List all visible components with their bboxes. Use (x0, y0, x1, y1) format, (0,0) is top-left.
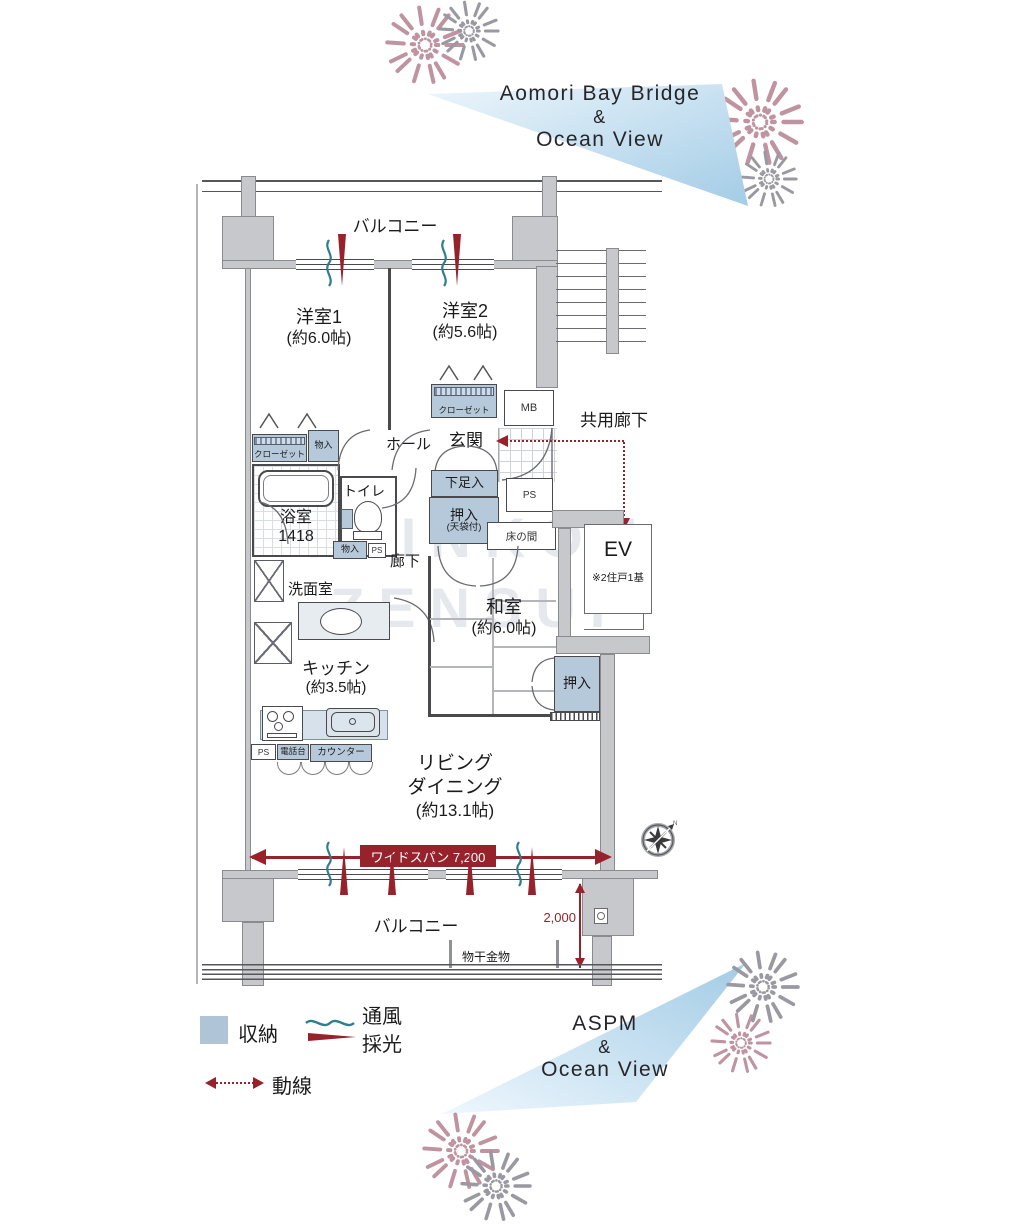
monoire-corridor-label: 物入 (341, 545, 359, 555)
hall-door-arc (380, 466, 418, 510)
washitsu-size: (約6.0帖) (452, 619, 556, 639)
elevator-label: EV (584, 538, 652, 562)
wall-common-b (558, 528, 571, 640)
compass-icon: N (638, 818, 680, 860)
bath-door-arc (258, 500, 290, 546)
closet-western2-rail (434, 387, 494, 396)
living-name2: ダイニング (384, 776, 526, 800)
view-top-amp: & (460, 107, 740, 128)
living-name1: リビング (384, 752, 526, 776)
view-label-top: Aomori Bay Bridge & Ocean View (460, 82, 740, 153)
wall-left (245, 268, 251, 876)
oshiire-hall-label: 押入 (450, 508, 478, 523)
view-bottom-amp: & (470, 1037, 740, 1058)
view-bottom-line1: ASPM (470, 1012, 740, 1037)
shoe-cabinet: 下足入 (431, 470, 498, 497)
counter-scallop (277, 762, 301, 775)
mb-label: MB (521, 402, 538, 414)
widespan-arrowhead-right (595, 849, 615, 865)
kitchen-label: キッチン (約3.5帖) (280, 658, 392, 698)
legend-vent-label: 通風 (362, 1000, 402, 1029)
oshiire-door-arc (530, 684, 556, 712)
legend-storage-swatch (200, 1016, 228, 1044)
view-label-bottom: ASPM & Ocean View (470, 1012, 740, 1083)
firework-icon (438, 0, 500, 67)
daylight-arrow-icon (338, 234, 346, 289)
washitsu-label: 和室 (約6.0帖) (452, 596, 556, 639)
monoire-western1-label: 物入 (314, 441, 332, 451)
phone-stand: 電話台 (277, 744, 309, 760)
column-bottom-right (582, 878, 634, 936)
toilet-door-arc (336, 428, 372, 472)
hanger-icon (258, 412, 280, 429)
washitsu-door-arc (478, 544, 520, 588)
pipe-space-corridor: PS (368, 543, 386, 558)
wall-right-lower (600, 654, 615, 876)
monoire-western1: 物入 (308, 430, 339, 462)
oshiire-door-arc (530, 656, 556, 684)
western2-size: (約5.6帖) (395, 323, 535, 343)
stove (262, 706, 303, 741)
ps-corridor-label: PS (372, 546, 383, 555)
dimension-2000-label: 2,000 (532, 910, 576, 925)
counter-label: カウンター (317, 748, 365, 758)
toilet-label: トイレ (343, 481, 385, 501)
wall-common-c (556, 636, 650, 654)
corridor-label: 廊下 (390, 550, 420, 571)
vent-wave-icon (322, 238, 336, 288)
widespan-label: ワイドスパン 7,200 (360, 845, 496, 867)
stairs-rail (606, 248, 619, 354)
column-bottom-left (222, 878, 274, 922)
washitsu-name: 和室 (452, 596, 556, 619)
washer-space (254, 560, 284, 602)
hanger-icon (472, 364, 494, 381)
kitchen-size: (約3.5帖) (280, 679, 392, 698)
dimension-2000-line (579, 884, 581, 968)
daylight-arrow-icon (528, 844, 536, 895)
washitsu-west-wall (428, 556, 431, 716)
flow-line-horizontal (506, 440, 624, 442)
ps-kitchen-label: PS (258, 747, 269, 757)
legend-flow-arrowhead-right (253, 1077, 267, 1089)
view-top-line1: Aomori Bay Bridge (460, 82, 740, 107)
vent-wave-icon (437, 238, 451, 288)
western1-name: 洋室1 (250, 306, 388, 329)
monoire-corridor: 物入 (333, 541, 367, 559)
wall-right-upper (536, 266, 558, 388)
daylight-arrow-icon (388, 844, 396, 895)
widespan-arrowhead-left (246, 849, 266, 865)
elevator-note: ※2住戸1基 (576, 570, 660, 585)
legend-daylight-arrow-icon (308, 1033, 359, 1041)
legend-light-label: 採光 (362, 1028, 402, 1057)
legend-vent-wave-icon (304, 1014, 358, 1032)
counter: カウンター (310, 744, 372, 762)
balcony-hinge-detail (594, 908, 608, 924)
washroom-label: 洗面室 (288, 578, 333, 599)
pipe-space-kitchen: PS (251, 744, 276, 760)
toilet-tank (353, 531, 382, 540)
vanity-sink (320, 608, 362, 635)
oshiire-rail (550, 712, 600, 721)
oshiire-washitsu: 押入 (554, 656, 600, 712)
meter-box: MB (504, 390, 554, 426)
counter-scallop (349, 762, 373, 775)
tatami-line (493, 646, 556, 648)
tatami-line (430, 666, 492, 668)
window-living-right (446, 869, 562, 880)
shoe-cabinet-label: 下足入 (445, 476, 484, 490)
legend-flow-label: 動線 (272, 1070, 312, 1099)
toilet-bowl (354, 501, 382, 533)
counter-scallop (301, 762, 325, 775)
daylight-arrow-icon (466, 844, 474, 895)
ps-entrance-label: PS (523, 490, 536, 501)
hanger-icon (296, 412, 318, 429)
flow-line-vertical (623, 442, 625, 520)
closet-western1-label: クローゼット (254, 450, 305, 459)
living-size: (約13.1帖) (384, 800, 526, 821)
room-western2-label: 洋室2 (約5.6帖) (395, 300, 535, 343)
view-bottom-line3: Ocean View (470, 1058, 740, 1083)
balcony-top-label: バルコニー (330, 212, 460, 237)
balcony-top-railing (202, 180, 662, 192)
living-label: リビング ダイニング (約13.1帖) (384, 752, 526, 821)
daylight-arrow-icon (453, 234, 461, 289)
left-boundary-line (196, 184, 198, 984)
firework-icon (710, 1012, 772, 1079)
western2-name: 洋室2 (395, 300, 535, 323)
view-top-line3: Ocean View (460, 128, 740, 153)
tokonoma-label: 床の間 (506, 529, 538, 544)
phone-stand-label: 電話台 (280, 747, 306, 756)
legend-flow-arrowhead-left (202, 1077, 216, 1089)
vent-wave-icon (322, 840, 336, 888)
kitchen-name: キッチン (280, 658, 392, 679)
oshiire-washitsu-label: 押入 (563, 676, 591, 691)
closet-western1-rail (254, 437, 305, 445)
window-living-left (298, 869, 428, 880)
vent-wave-icon (512, 840, 526, 888)
western1-size: (約6.0帖) (250, 329, 388, 349)
counter-scallop (325, 762, 349, 775)
column-top-left-stem (241, 176, 256, 220)
balcony-bottom-label: バルコニー (366, 912, 466, 937)
hanger-icon (438, 364, 460, 381)
room-western1-label: 洋室1 (約6.0帖) (250, 306, 388, 349)
daylight-arrow-icon (340, 844, 348, 895)
svg-text:N: N (673, 821, 677, 827)
closet-western2-label: クローゼット (438, 406, 489, 415)
elevator-step (584, 614, 644, 630)
washitsu-door-arc (436, 544, 478, 588)
column-top-right-stem (542, 176, 557, 220)
floorplan-page: Aomori Bay Bridge & Ocean View SHINKOU Z… (0, 0, 1035, 1224)
legend-flow-line (212, 1082, 254, 1084)
washitsu-south-wall (428, 714, 558, 717)
firework-icon (460, 1150, 532, 1224)
wall-western-divider (388, 268, 391, 430)
oshiire-hall-sublabel: (天袋付) (447, 523, 482, 533)
kitchen-sink (326, 708, 380, 737)
pipe-space-entrance: PS (506, 478, 553, 512)
legend-storage-label: 収納 (238, 1018, 278, 1047)
common-corridor-label: 共用廊下 (580, 406, 648, 431)
dimension-arrowhead-up (575, 880, 585, 893)
common-stairs (556, 250, 646, 354)
toilet-cistern (341, 509, 353, 529)
